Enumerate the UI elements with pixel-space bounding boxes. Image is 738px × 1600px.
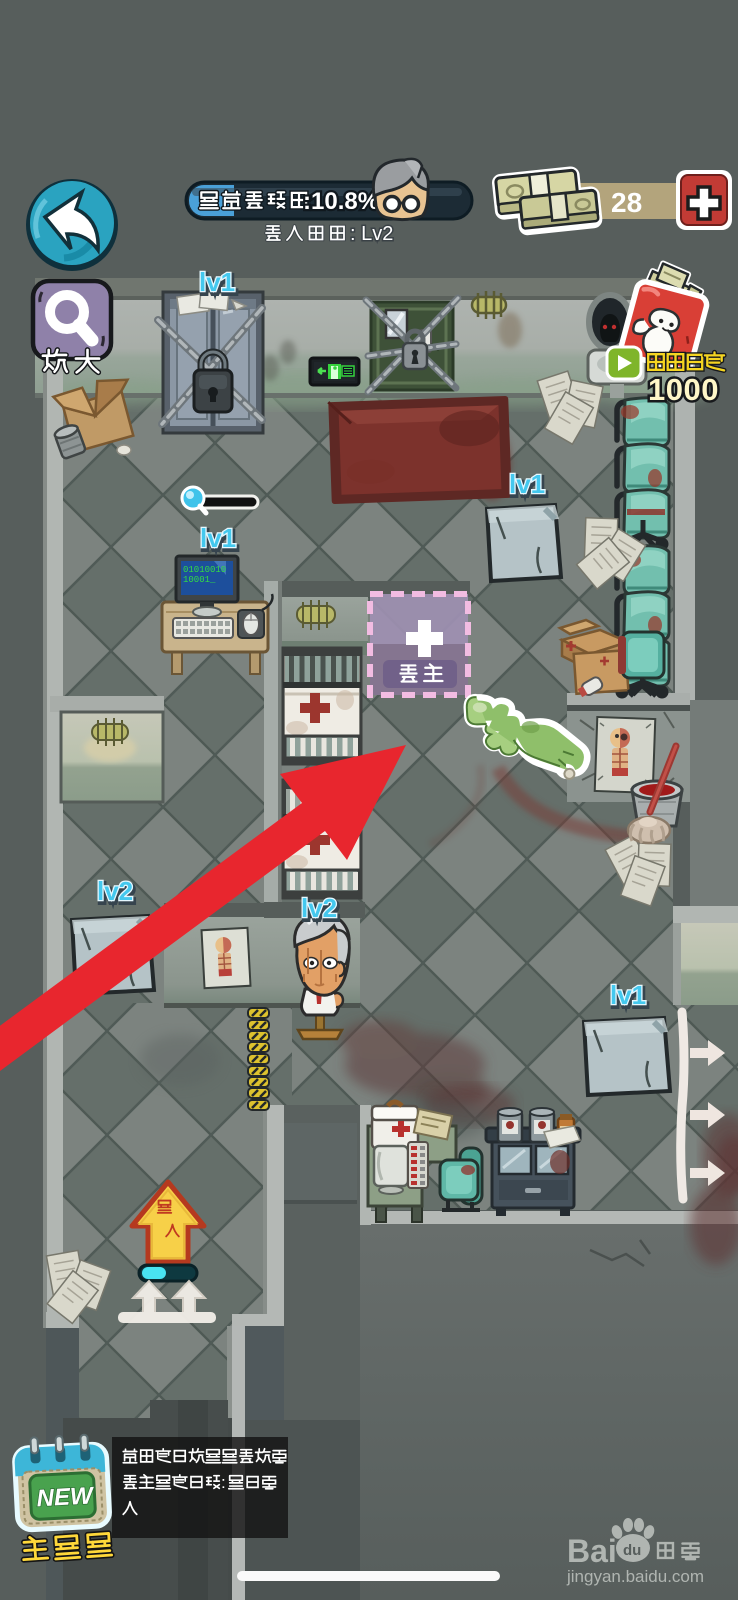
svg-text:: Lv2: : Lv2 [350, 223, 393, 245]
svg-text::: : [221, 1473, 226, 1492]
svg-text:du: du [623, 1542, 641, 1559]
svg-text:01010010: 01010010 [183, 565, 226, 575]
svg-text:Bai: Bai [567, 1533, 617, 1569]
svg-text:lv2: lv2 [301, 893, 337, 923]
svg-text:28: 28 [611, 187, 642, 218]
svg-text:lv1: lv1 [509, 469, 545, 499]
svg-text:lv1: lv1 [200, 523, 236, 553]
svg-text::10.8%: :10.8% [303, 188, 379, 215]
svg-text:lv1: lv1 [199, 267, 235, 297]
svg-text:lv2: lv2 [97, 876, 133, 906]
svg-text:1000: 1000 [648, 372, 719, 407]
svg-text:lv1: lv1 [610, 980, 646, 1010]
svg-text:jingyan.baidu.com: jingyan.baidu.com [566, 1567, 704, 1586]
svg-text:NEW: NEW [36, 1482, 96, 1512]
svg-text:10001_: 10001_ [183, 575, 216, 585]
